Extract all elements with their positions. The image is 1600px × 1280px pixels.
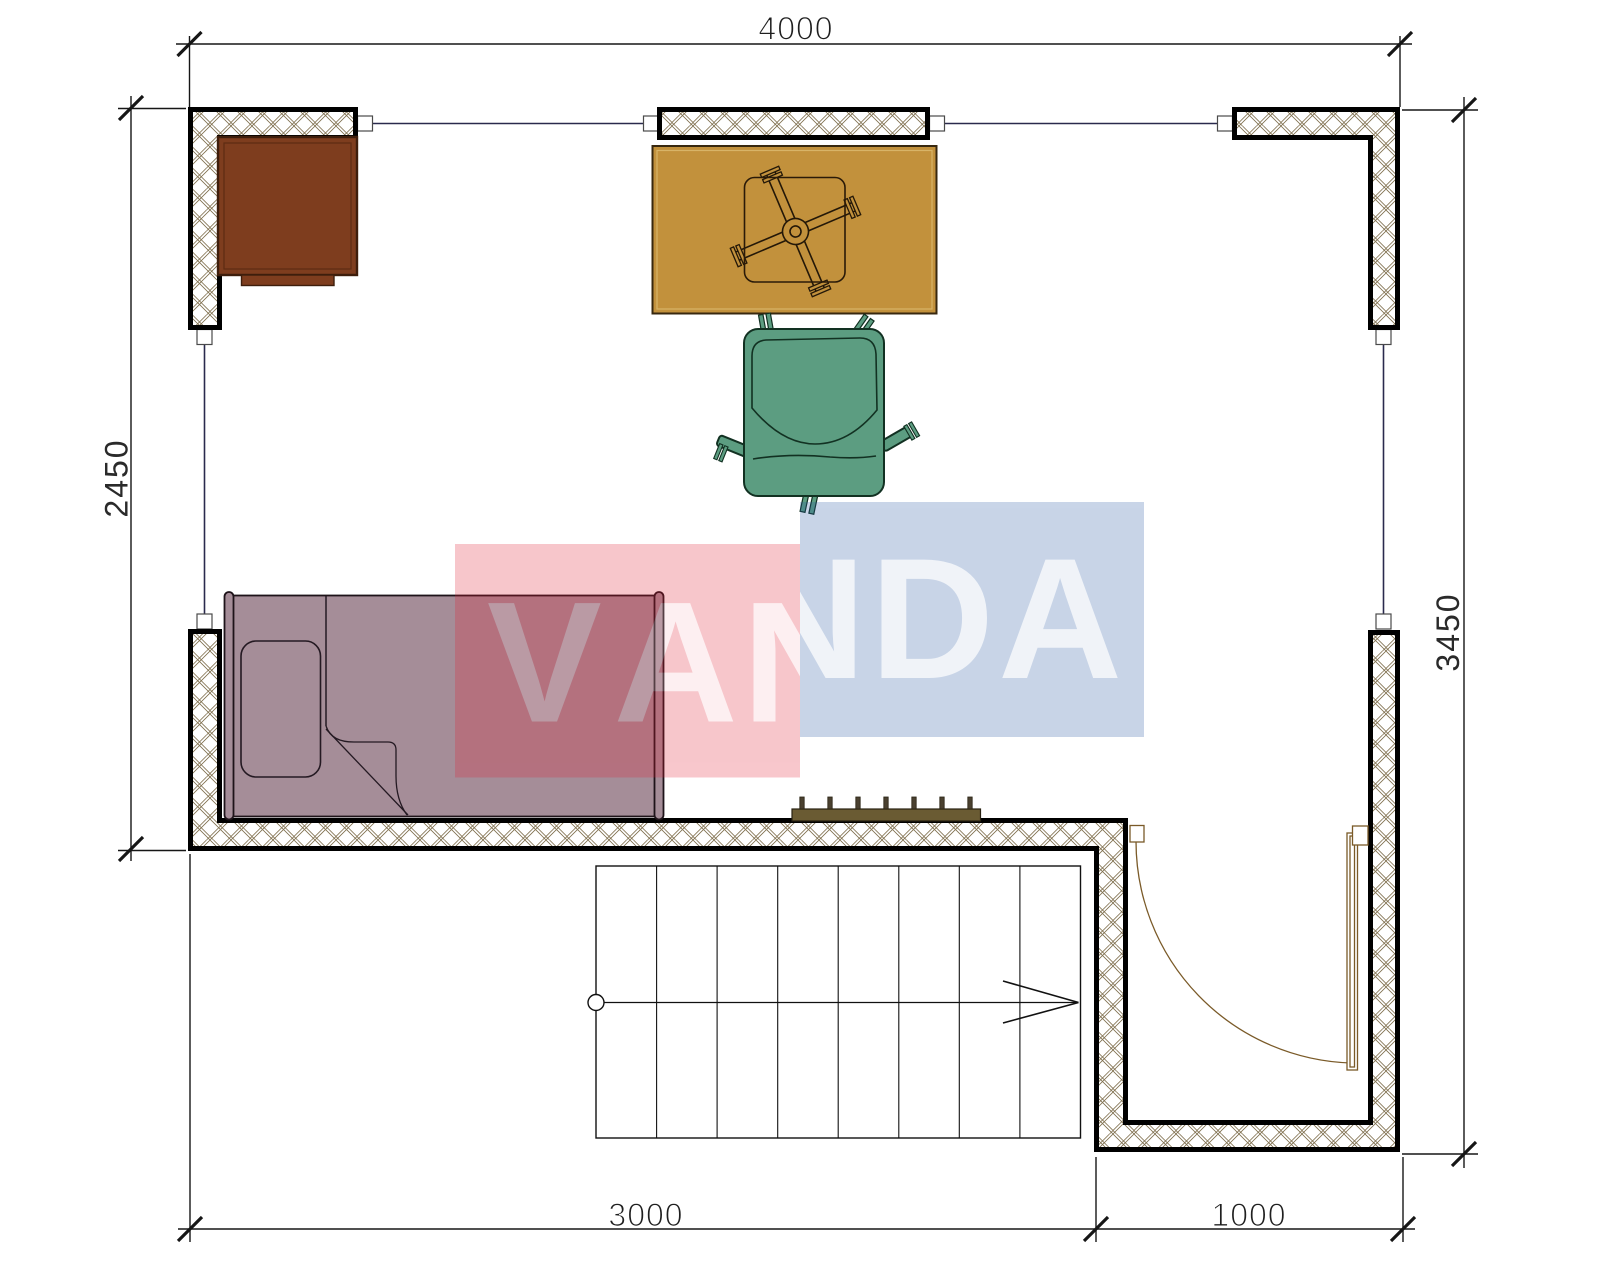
svg-text:2450: 2450 <box>99 438 135 517</box>
svg-text:3000: 3000 <box>608 1197 683 1233</box>
svg-text:3450: 3450 <box>1430 592 1466 671</box>
svg-text:1000: 1000 <box>1211 1197 1286 1233</box>
svg-text:4000: 4000 <box>758 11 833 47</box>
